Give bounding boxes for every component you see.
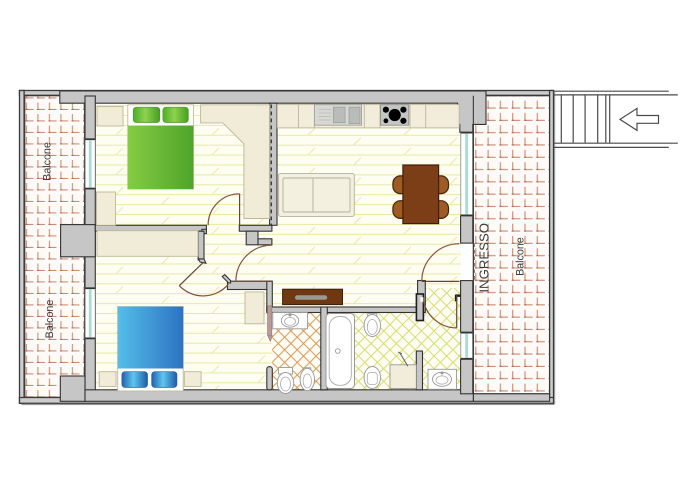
svg-text:INGRESSO: INGRESSO: [476, 223, 491, 293]
svg-text:Balcone: Balcone: [44, 300, 56, 339]
svg-text:Balcone: Balcone: [515, 237, 527, 276]
svg-text:Balcone: Balcone: [42, 142, 54, 181]
